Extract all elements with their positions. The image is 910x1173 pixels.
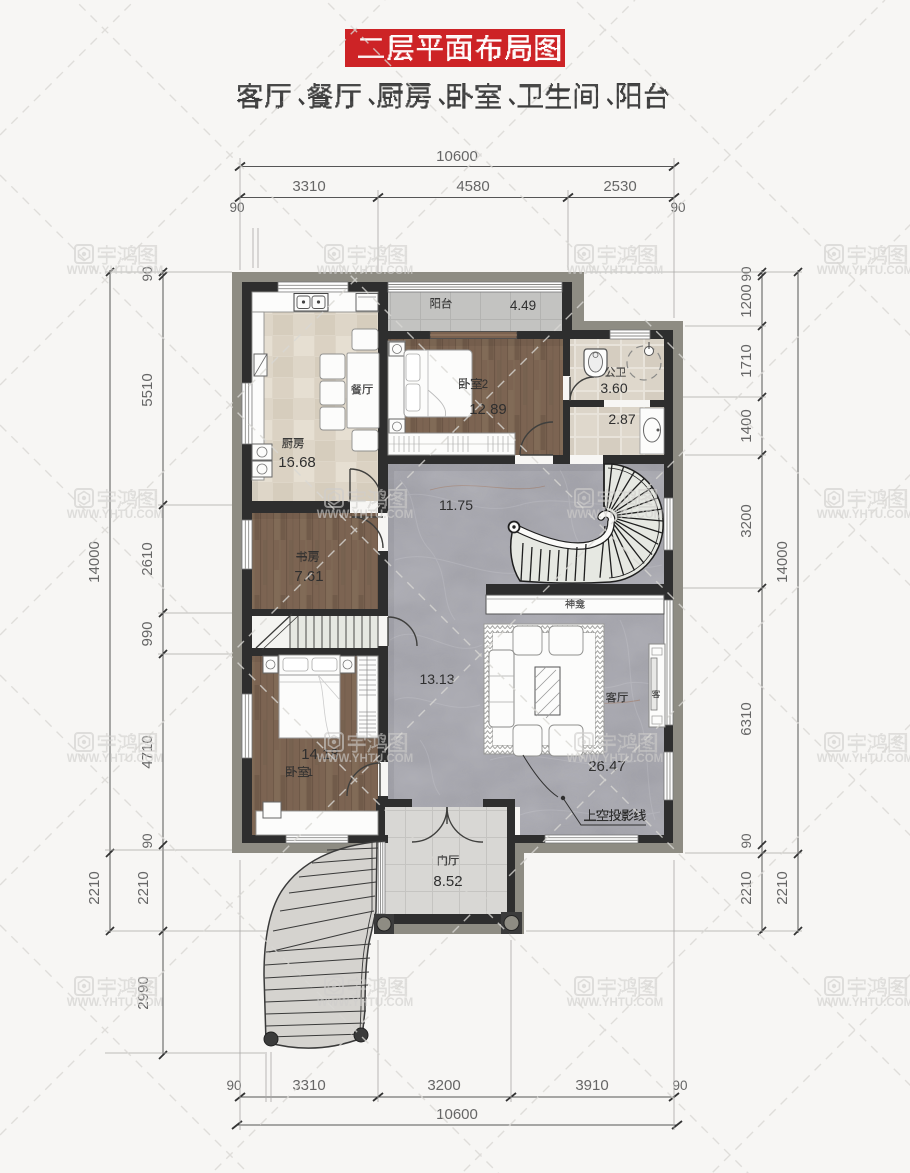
svg-text:90: 90 xyxy=(739,266,754,281)
svg-text:14000: 14000 xyxy=(774,541,791,583)
svg-text:990: 990 xyxy=(139,621,156,646)
svg-text:10600: 10600 xyxy=(436,148,478,165)
svg-text:WWW.YHTU.COM: WWW.YHTU.COM xyxy=(67,265,163,277)
svg-text:3910: 3910 xyxy=(575,1077,608,1094)
svg-text:WWW.YHTU.COM: WWW.YHTU.COM xyxy=(567,265,663,277)
svg-text:1710: 1710 xyxy=(738,344,755,377)
svg-text:90: 90 xyxy=(229,200,244,215)
svg-text:2610: 2610 xyxy=(139,542,156,575)
svg-text:4580: 4580 xyxy=(456,178,489,195)
svg-text:3200: 3200 xyxy=(738,504,755,537)
svg-text:10600: 10600 xyxy=(436,1106,478,1123)
svg-text:2210: 2210 xyxy=(774,871,791,904)
svg-text:8.52: 8.52 xyxy=(433,873,462,890)
svg-text:3310: 3310 xyxy=(292,178,325,195)
svg-text:6310: 6310 xyxy=(738,702,755,735)
svg-text:2210: 2210 xyxy=(135,871,152,904)
svg-text:11.75: 11.75 xyxy=(439,497,473,513)
svg-text:2: 2 xyxy=(482,379,488,391)
svg-text:5510: 5510 xyxy=(139,373,156,406)
svg-text:WWW.YHTU.COM: WWW.YHTU.COM xyxy=(67,753,163,765)
svg-text:4.49: 4.49 xyxy=(510,298,536,313)
svg-text:3200: 3200 xyxy=(427,1077,460,1094)
svg-text:1400: 1400 xyxy=(738,409,755,442)
svg-text:13.13: 13.13 xyxy=(419,671,454,687)
svg-text:90: 90 xyxy=(140,833,155,848)
svg-text:90: 90 xyxy=(226,1078,241,1093)
svg-text:2.87: 2.87 xyxy=(608,411,635,427)
svg-text:WWW.YHTU.COM: WWW.YHTU.COM xyxy=(317,265,413,277)
svg-text:WWW.YHTU.COM: WWW.YHTU.COM xyxy=(317,753,413,765)
svg-text:90: 90 xyxy=(739,833,754,848)
svg-text:WWW.YHTU.COM: WWW.YHTU.COM xyxy=(567,753,663,765)
svg-text:WWW.YHTU.COM: WWW.YHTU.COM xyxy=(817,997,910,1009)
svg-text:3310: 3310 xyxy=(292,1077,325,1094)
svg-text:1: 1 xyxy=(307,767,313,779)
svg-text:1200: 1200 xyxy=(738,284,755,317)
svg-text:WWW.YHTU.COM: WWW.YHTU.COM xyxy=(817,509,910,521)
svg-text:90: 90 xyxy=(672,1078,687,1093)
svg-text:16.68: 16.68 xyxy=(278,454,316,471)
svg-text:14000: 14000 xyxy=(86,541,103,583)
svg-text:3.60: 3.60 xyxy=(600,380,627,396)
svg-text:2210: 2210 xyxy=(86,871,103,904)
svg-text:2530: 2530 xyxy=(603,178,636,195)
